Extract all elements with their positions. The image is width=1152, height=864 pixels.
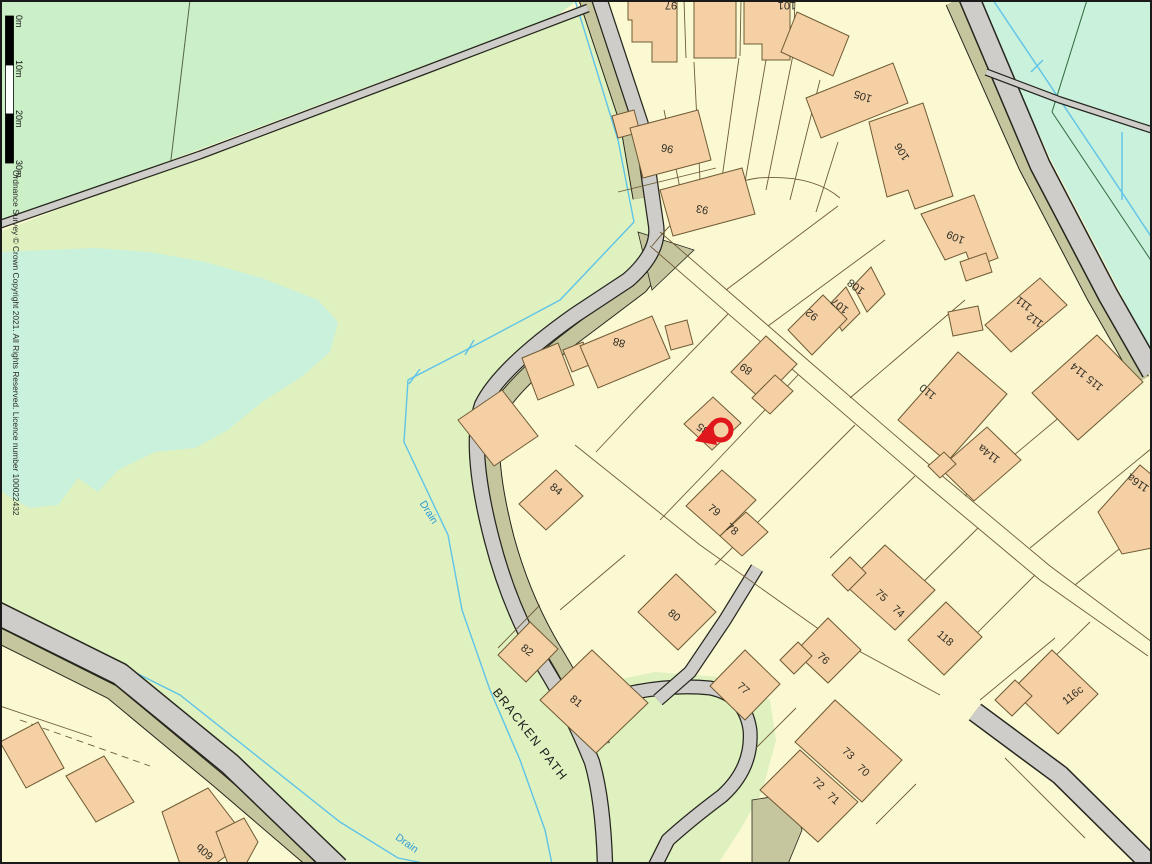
building [948, 306, 983, 336]
building [694, 0, 736, 58]
map-viewer: 97 101 105 106 96 93 109 108 107 92 111 … [0, 0, 1152, 864]
map-canvas[interactable]: 97 101 105 106 96 93 109 108 107 92 111 … [0, 0, 1152, 864]
scale-label: 20m [14, 110, 24, 128]
plot-number: 96 [660, 141, 674, 155]
plot-number: 93 [695, 202, 709, 216]
scale-segment [6, 16, 14, 65]
scale-segment [6, 65, 14, 114]
scale-label: 10m [14, 60, 24, 78]
scale-segment [6, 114, 14, 163]
copyright-attribution: Ordnance Survey © Crown Copyright 2021. … [11, 170, 21, 516]
scale-label: 0m [14, 15, 24, 28]
